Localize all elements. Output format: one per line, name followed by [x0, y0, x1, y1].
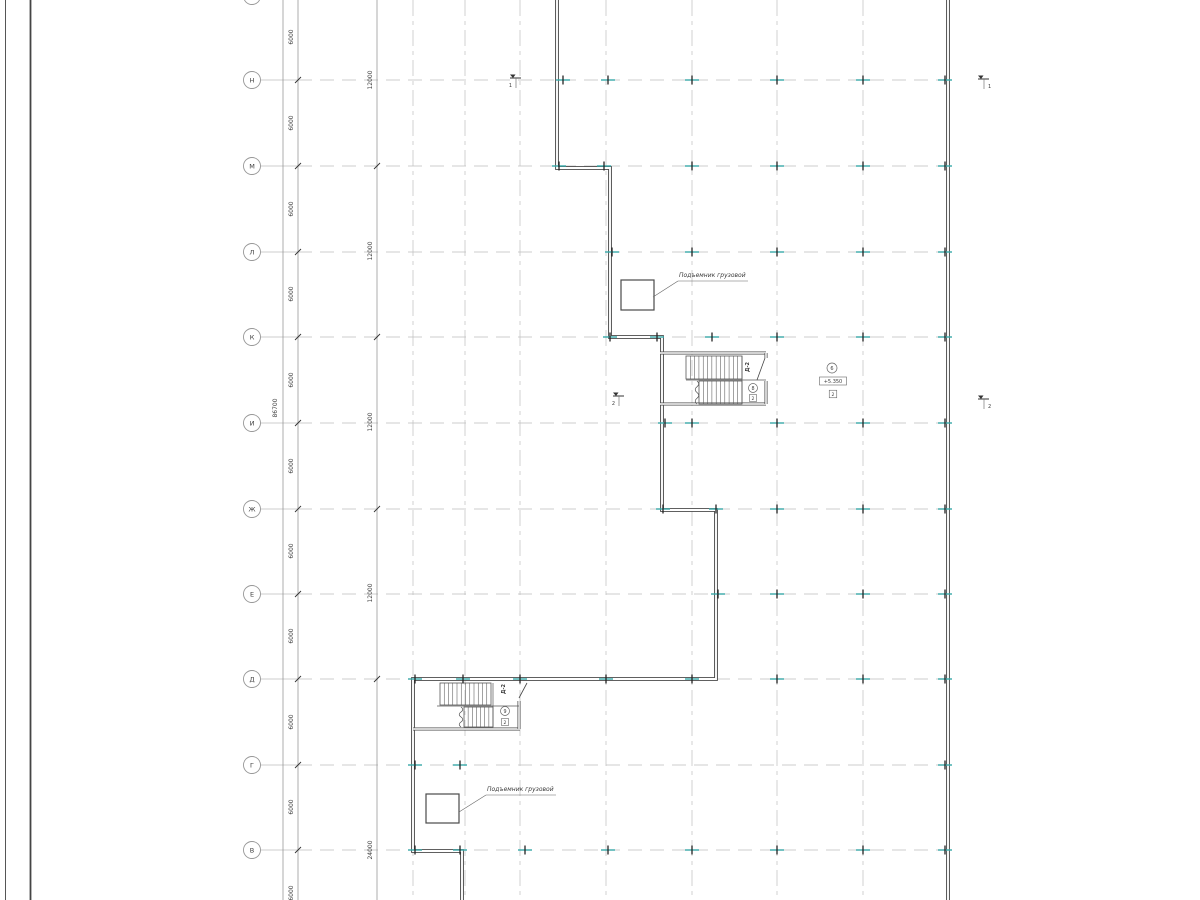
section-number: 1	[988, 84, 991, 90]
dimension-text: 12000	[367, 241, 374, 260]
floor-plan-canvas: ПНМЛКИЖЕДГВ60006000600060006000600060006…	[0, 0, 1200, 900]
drawing-sheet: ПНМЛКИЖЕДГВ60006000600060006000600060006…	[0, 0, 1200, 900]
dimension-text: 6000	[288, 372, 295, 387]
dimension-text: 6000	[288, 286, 295, 301]
grid-bubble-label: К	[250, 333, 255, 341]
dimension-text: 12000	[367, 583, 374, 602]
section-number: 2	[988, 404, 991, 410]
door-label: Д-2	[501, 683, 507, 694]
zone-number: 2	[752, 396, 755, 402]
dimension-text: 6000	[288, 885, 295, 900]
freight-lift-shaft	[621, 280, 654, 310]
grid-bubble-label: Г	[250, 761, 254, 769]
zone-number: 2	[504, 720, 507, 726]
freight-lift-label: Подъемник грузовой	[487, 786, 554, 793]
grid-bubble-label: Н	[250, 76, 255, 84]
grid-bubble-label: И	[250, 419, 255, 427]
dimension-text: 86700	[272, 398, 279, 417]
dimension-text: 6000	[288, 458, 295, 473]
dimension-text: 6000	[288, 29, 295, 44]
dimension-text: 6000	[288, 201, 295, 216]
dimension-text: 6000	[288, 543, 295, 558]
dimension-text: 24000	[367, 840, 374, 859]
stair-number: 9	[503, 709, 506, 715]
level-zone-number: 2	[832, 392, 835, 398]
grid-bubble-label: Е	[250, 590, 254, 598]
dimension-text: 6000	[288, 115, 295, 130]
dimension-text: 6000	[288, 714, 295, 729]
door-label: Д-2	[745, 361, 751, 372]
grid-bubble-label: В	[250, 846, 254, 854]
grid-bubble-label: Д	[249, 675, 254, 683]
section-number: 1	[509, 83, 512, 89]
freight-lift-label: Подъемник грузовой	[679, 272, 746, 279]
section-number: 2	[612, 401, 615, 407]
dimension-text: 12000	[367, 412, 374, 431]
dimension-text: 12000	[367, 70, 374, 89]
grid-bubble-label: Ж	[248, 505, 255, 513]
grid-bubble-label: Л	[250, 248, 255, 256]
dimension-text: 6000	[288, 799, 295, 814]
level-value: +5.350	[824, 379, 843, 385]
stair-number: 8	[751, 386, 754, 392]
dimension-text: 6000	[288, 628, 295, 643]
node-number: 6	[830, 366, 833, 372]
freight-lift-shaft	[426, 794, 459, 823]
grid-bubble-label: М	[249, 162, 255, 170]
